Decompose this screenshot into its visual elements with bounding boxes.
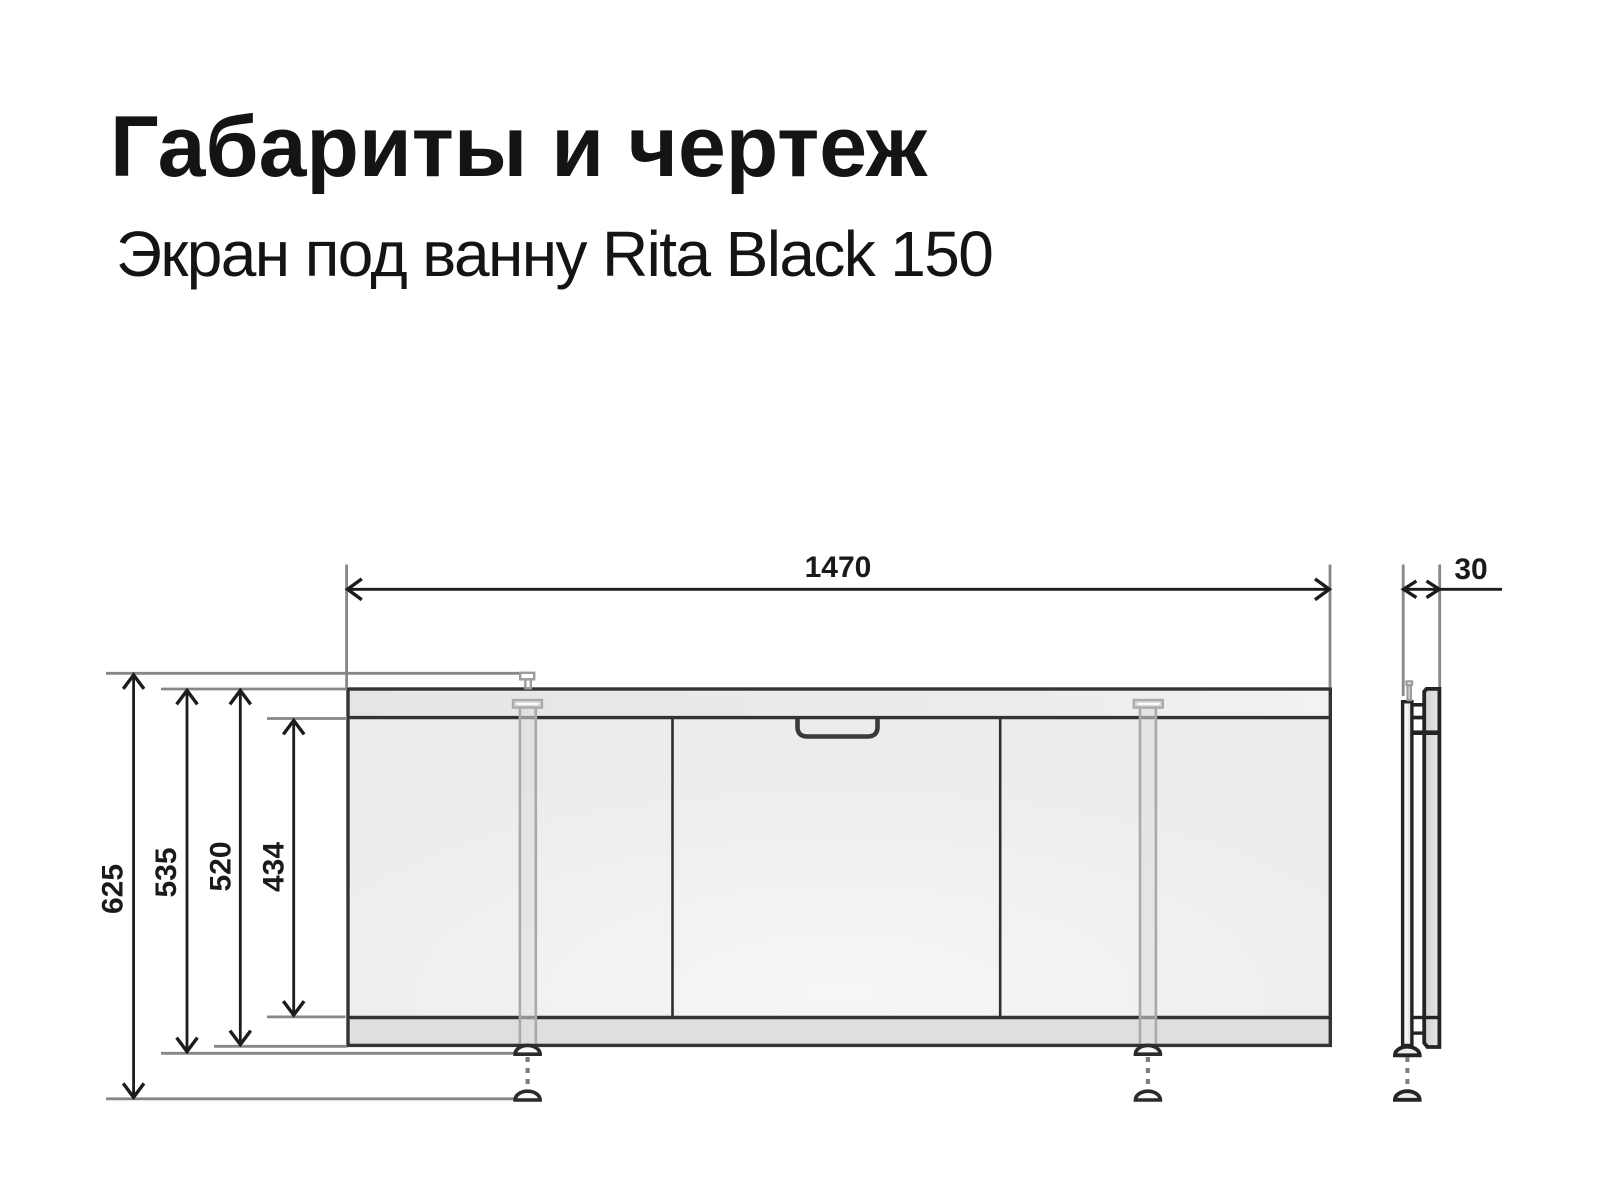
svg-text:1470: 1470 [805,551,872,584]
svg-text:Экран под ванну Rita Black 150: Экран под ванну Rita Black 150 [116,218,992,290]
svg-text:520: 520 [205,841,238,891]
svg-text:535: 535 [150,847,183,897]
svg-text:434: 434 [258,842,291,892]
svg-text:30: 30 [1454,553,1487,586]
svg-text:625: 625 [97,864,130,914]
svg-text:Габариты и чертеж: Габариты и чертеж [110,99,928,195]
